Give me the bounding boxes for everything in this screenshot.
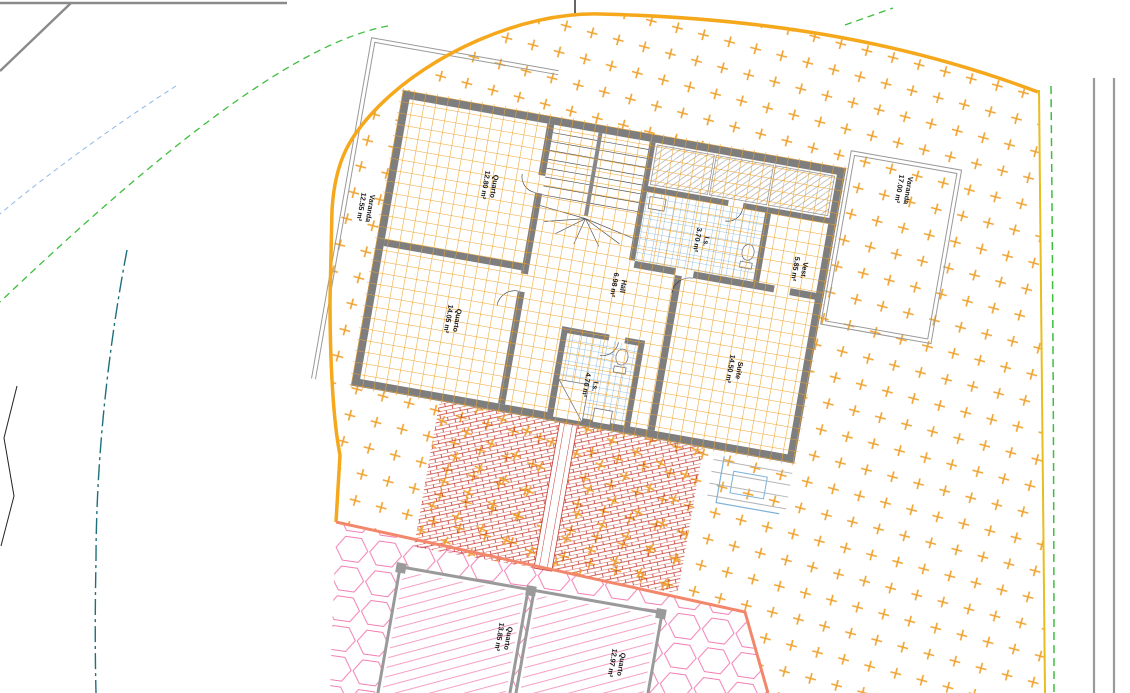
- cad-drawing-viewport[interactable]: Varanda 12.55 m² Quarto 12.80 m² Quarto …: [0, 0, 1130, 693]
- blue-dashed-contour: [0, 86, 176, 214]
- floor-plan-canvas[interactable]: Varanda 12.55 m² Quarto 12.80 m² Quarto …: [0, 0, 1130, 693]
- top-right-green-dash: [845, 8, 893, 25]
- left-edge-polyline: [1, 386, 17, 546]
- right-boundary-green-dashed: [1051, 86, 1054, 693]
- corner-diagonal-line: [0, 3, 71, 71]
- teal-centerline: [95, 250, 127, 693]
